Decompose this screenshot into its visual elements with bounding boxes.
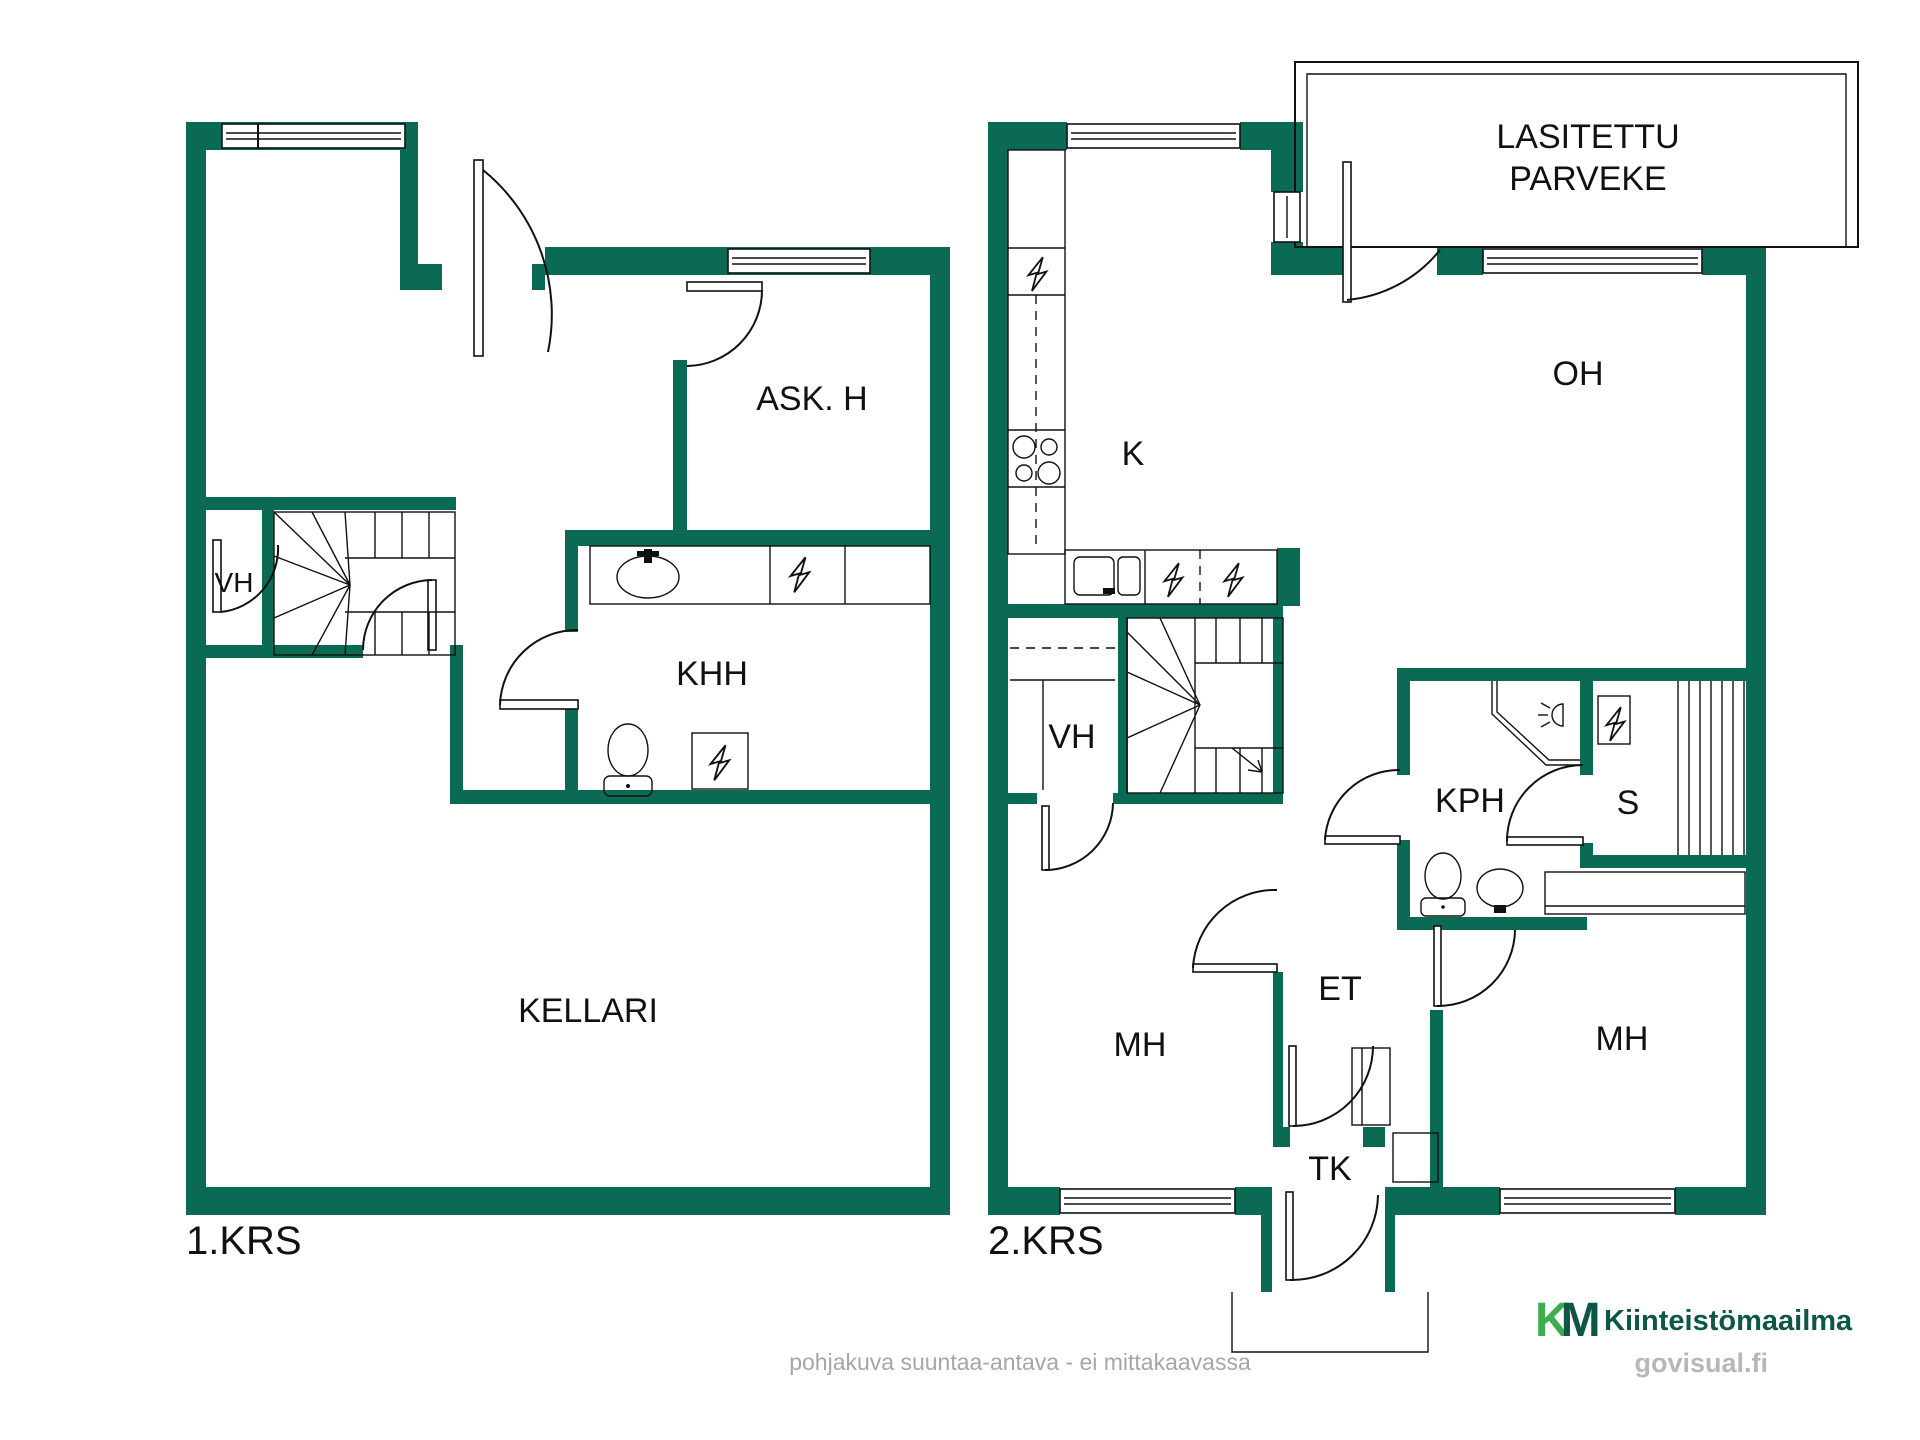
door-arc [363,580,436,650]
disclaimer-text: pohjakuva suuntaa-antava - ei mittakaava… [789,1349,1251,1375]
wall [206,645,363,658]
door-arc [1434,926,1515,1006]
wall [930,247,950,1215]
room-label-mh-left: MH [1114,1026,1167,1064]
wall [988,122,1008,1215]
wardrobe [1545,872,1745,914]
door-arc [474,160,552,356]
window [728,249,870,273]
staircase [1127,618,1283,793]
wall [1113,793,1283,804]
room-label-k: K [1122,435,1145,473]
floor1-walls [186,122,950,1215]
window [1067,124,1240,148]
wall [1746,247,1766,1215]
room-label-vh-1: VH [215,567,254,598]
window [222,124,405,148]
door-arc [1289,1046,1373,1126]
wall [988,122,1067,150]
door-arc [1042,803,1113,870]
door-arc [500,630,578,709]
kitchen-sink-icon [1074,557,1140,595]
km-logo: KM Kiinteistömaailma [1535,1294,1853,1347]
wall [1363,1127,1385,1147]
window [1274,192,1300,242]
wall [1702,247,1766,275]
sauna-heater-icon [1598,696,1630,744]
balcony-label-line2: PARVEKE [1509,160,1666,198]
wall [186,1187,950,1215]
room-label-ask-h: ASK. H [756,380,867,418]
wall [186,122,206,1215]
appliance-bolt-icon [1224,563,1242,597]
appliance-box [692,733,748,789]
wall [206,497,456,510]
wall [565,530,578,632]
wall [1007,793,1037,804]
brand-name: Kiinteistömaailma [1604,1305,1853,1337]
wall [1271,150,1303,192]
watermark-text: govisual.fi [1634,1348,1768,1378]
wall [1437,247,1483,275]
wall [1273,618,1283,793]
floor2-plan: K OH VH KPH S ET MH MH TK LASITETTU PARV… [988,62,1858,1352]
toilet-icon [604,724,652,796]
appliance-bolt-icon [1028,257,1046,291]
wall [1261,1187,1272,1292]
toilet-icon [1421,853,1465,916]
logo-m: M [1561,1294,1601,1347]
floor1-label: 1.KRS [186,1219,302,1263]
wall [1007,604,1283,618]
wall [1397,840,1410,930]
door-arc [1193,890,1277,972]
wall [1397,668,1410,775]
wall [1580,855,1766,868]
wall [565,530,950,546]
wall [532,264,545,290]
svg-text:KM: KM [1535,1294,1601,1347]
wall [1277,548,1300,606]
room-label-kellari: KELLARI [518,992,658,1030]
floorplan-page: VH KHH ASK. H KELLARI 1.KRS [0,0,1920,1440]
appliance-bolt-icon [791,557,810,592]
floor2-walls [988,122,1766,1292]
room-label-kph: KPH [1435,782,1505,820]
wall [1240,122,1303,150]
wall [1397,668,1587,681]
door-arc [687,282,762,366]
wall [988,1187,1060,1215]
wall [418,264,442,290]
room-label-oh: OH [1553,355,1604,393]
wall [1580,668,1766,681]
floor1-plan: VH KHH ASK. H KELLARI 1.KRS [186,122,950,1263]
wall [1273,972,1283,1130]
wall [1385,1187,1500,1215]
wall [1397,917,1587,930]
wall [1580,668,1593,775]
wall [565,700,578,800]
floor2-label: 2.KRS [988,1219,1104,1263]
room-label-et: ET [1318,970,1361,1008]
door-arc [1286,1192,1378,1280]
sauna-benches [1678,681,1744,855]
room-label-vh-2: VH [1048,718,1095,756]
kitchen-counter [1008,150,1277,604]
door-arc [1343,162,1440,302]
wall [1385,1187,1395,1292]
door-arc [1507,765,1583,845]
floorplan-drawing: VH KHH ASK. H KELLARI 1.KRS [0,0,1920,1440]
room-label-mh-right: MH [1596,1020,1649,1058]
entry-porch [1232,1292,1428,1352]
wall [460,790,950,804]
appliance-bolt-icon [1164,563,1182,597]
window [1483,249,1702,273]
window [1500,1189,1675,1213]
door-arc [1325,770,1400,844]
shower-icon [1492,681,1580,765]
wall [1430,1010,1443,1187]
wall [1297,247,1347,275]
window [1060,1189,1235,1213]
sink-icon [1477,869,1523,913]
sink-icon [617,549,679,598]
wall [673,360,687,542]
wall [450,645,463,804]
wall [1273,1127,1290,1147]
room-label-s: S [1617,784,1640,822]
room-label-khh: KHH [676,655,748,693]
room-label-tk: TK [1308,1150,1352,1188]
balcony-label-line1: LASITETTU [1496,118,1679,156]
